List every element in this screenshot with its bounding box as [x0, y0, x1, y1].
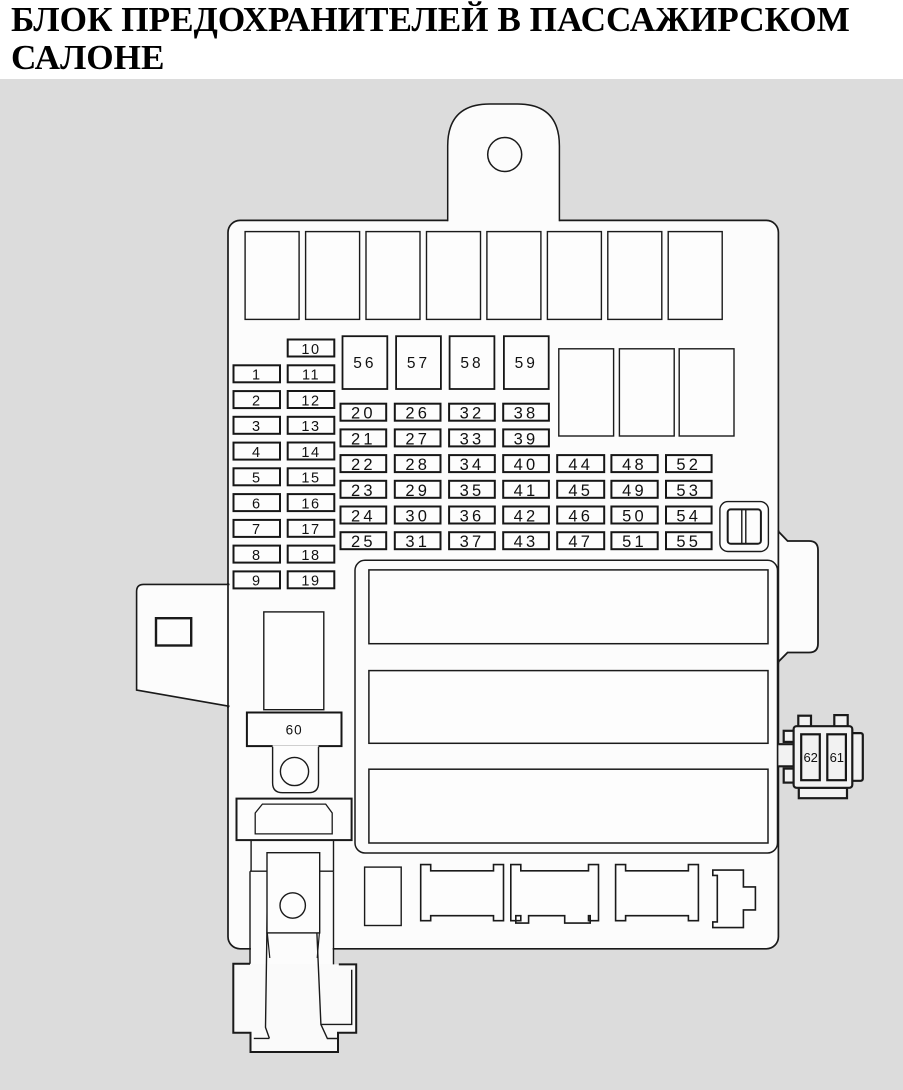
svg-text:1: 1	[252, 368, 262, 384]
svg-text:10: 10	[301, 342, 320, 358]
svg-text:56: 56	[353, 355, 376, 372]
svg-text:46: 46	[568, 508, 593, 526]
svg-text:62: 62	[803, 750, 817, 765]
svg-text:17: 17	[301, 522, 320, 538]
svg-text:57: 57	[407, 355, 430, 372]
svg-text:8: 8	[252, 548, 262, 564]
svg-text:61: 61	[830, 750, 844, 765]
svg-text:60: 60	[286, 722, 303, 737]
svg-text:9: 9	[252, 574, 262, 590]
svg-text:25: 25	[351, 533, 376, 551]
svg-text:44: 44	[568, 456, 593, 474]
svg-text:19: 19	[301, 574, 320, 590]
svg-text:31: 31	[405, 533, 430, 551]
svg-text:3: 3	[252, 419, 262, 435]
svg-text:55: 55	[676, 533, 701, 551]
svg-text:59: 59	[515, 355, 538, 372]
svg-text:42: 42	[514, 508, 539, 526]
svg-text:52: 52	[676, 456, 701, 474]
svg-text:12: 12	[301, 393, 320, 409]
svg-text:38: 38	[514, 405, 539, 423]
svg-text:11: 11	[302, 368, 320, 384]
svg-text:7: 7	[252, 522, 262, 538]
svg-text:20: 20	[351, 405, 376, 423]
svg-text:24: 24	[351, 508, 376, 526]
svg-text:15: 15	[301, 471, 320, 487]
svg-text:28: 28	[405, 456, 430, 474]
svg-text:6: 6	[252, 496, 262, 512]
svg-text:21: 21	[351, 430, 376, 448]
svg-text:51: 51	[622, 533, 647, 551]
svg-text:50: 50	[622, 508, 647, 526]
svg-text:14: 14	[301, 445, 320, 461]
svg-text:30: 30	[405, 508, 430, 526]
svg-text:29: 29	[405, 482, 430, 500]
svg-text:53: 53	[676, 482, 701, 500]
svg-text:26: 26	[405, 405, 430, 423]
svg-text:34: 34	[460, 456, 485, 474]
svg-text:23: 23	[351, 482, 376, 500]
svg-text:47: 47	[568, 533, 593, 551]
svg-text:13: 13	[301, 419, 320, 435]
svg-text:54: 54	[676, 508, 701, 526]
svg-text:32: 32	[460, 405, 485, 423]
svg-text:37: 37	[460, 533, 485, 551]
svg-text:39: 39	[514, 430, 539, 448]
svg-text:18: 18	[301, 548, 320, 564]
svg-text:16: 16	[301, 496, 320, 512]
svg-text:45: 45	[568, 482, 593, 500]
svg-text:5: 5	[252, 471, 262, 487]
svg-text:48: 48	[622, 456, 647, 474]
svg-text:2: 2	[252, 393, 262, 409]
svg-text:58: 58	[460, 355, 483, 372]
svg-text:36: 36	[460, 508, 485, 526]
svg-text:41: 41	[514, 482, 539, 500]
svg-text:40: 40	[514, 456, 539, 474]
svg-text:35: 35	[460, 482, 485, 500]
svg-text:49: 49	[622, 482, 647, 500]
svg-text:43: 43	[514, 533, 539, 551]
svg-text:33: 33	[460, 430, 485, 448]
svg-text:4: 4	[252, 445, 262, 461]
svg-text:22: 22	[351, 456, 376, 474]
svg-text:27: 27	[405, 430, 430, 448]
